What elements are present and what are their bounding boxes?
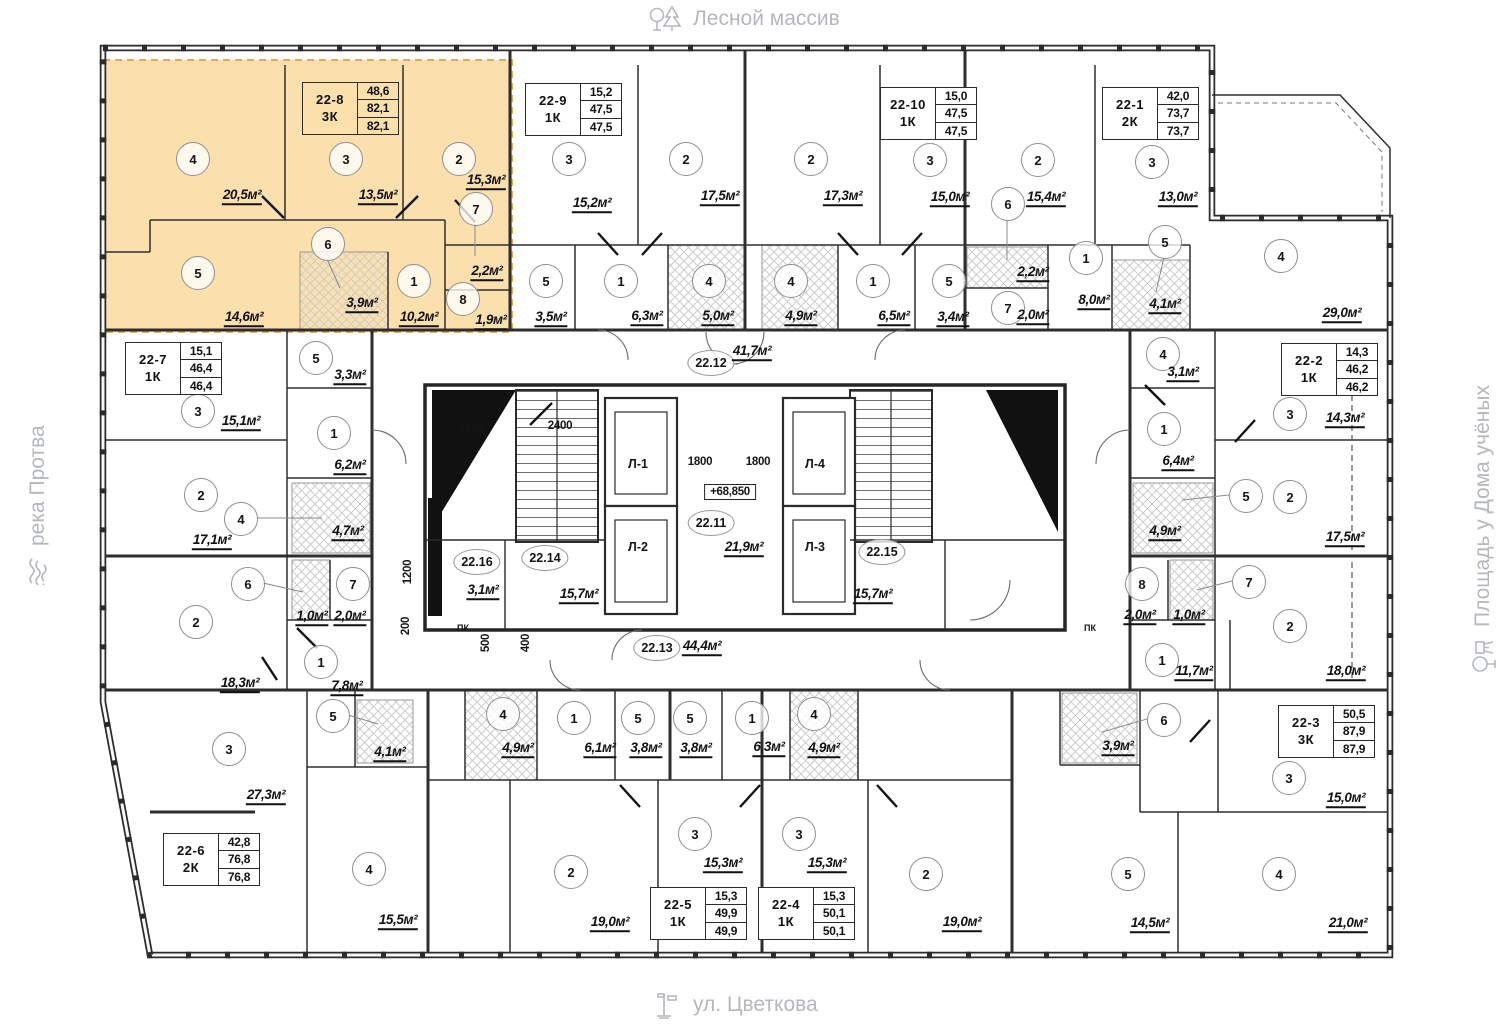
unit-number: 22-1 xyxy=(1116,97,1144,114)
room-area-label: 15,3м² xyxy=(807,855,847,873)
core-label: Л-4 xyxy=(805,457,825,471)
room-number-circle: 5 xyxy=(1229,479,1263,513)
room-number-circle: 1 xyxy=(1069,241,1103,275)
room-area-label: 18,0м² xyxy=(1326,663,1366,681)
room-area-label: 15,1м² xyxy=(221,413,261,431)
room-area-label: 2,0м² xyxy=(333,608,366,626)
room-area-label: 3,3м² xyxy=(333,367,366,385)
unit-id: 22-4 1К xyxy=(759,888,813,939)
room-area-label: 17,1м² xyxy=(192,532,232,550)
room-area-label: 2,0м² xyxy=(1123,607,1156,625)
room-number-circle: 7 xyxy=(459,192,493,226)
unit-number: 22-9 xyxy=(539,93,567,110)
plan-labels-layer: 420,5м²313,5м²215,3м²72,2м²514,6м²63,9м²… xyxy=(0,0,1500,1026)
room-area-label: 10,2м² xyxy=(399,309,439,327)
room-number-circle: 3 xyxy=(212,732,246,766)
unit-info-box[interactable]: 22-1 2К 42,0 73,7 73,7 xyxy=(1102,87,1199,140)
core-label: 3,1м² xyxy=(466,582,499,600)
unit-areas: 15,0 47,5 47,5 xyxy=(935,88,976,139)
unit-area-total: 49,9 xyxy=(706,904,746,921)
room-area-label: 15,4м² xyxy=(1026,189,1066,207)
room-area-label: 17,3м² xyxy=(823,188,863,206)
unit-area-full: 82,1 xyxy=(358,117,398,134)
dimension-label: +68,850 xyxy=(704,484,756,500)
room-number-circle: 1 xyxy=(397,264,431,298)
room-area-label: 3,9м² xyxy=(1101,738,1134,756)
room-area-label: 1,0м² xyxy=(1172,607,1205,625)
unit-id: 22-2 1К xyxy=(1282,344,1336,395)
room-number-circle: 1 xyxy=(856,264,890,298)
trees-icon xyxy=(648,5,682,33)
unit-areas: 14,3 46,2 46,2 xyxy=(1336,344,1377,395)
room-number-circle: 3 xyxy=(181,394,215,428)
unit-number: 22-5 xyxy=(664,897,692,914)
room-number-circle: 3 xyxy=(678,817,712,851)
room-number-circle: 1 xyxy=(735,701,769,735)
unit-id: 22-7 1К xyxy=(126,343,180,394)
unit-area-living: 15,3 xyxy=(814,888,854,904)
room-number-circle: 3 xyxy=(1135,145,1169,179)
core-label: Л-3 xyxy=(805,540,825,554)
unit-info-box[interactable]: 22-9 1К 15,2 47,5 47,5 xyxy=(525,83,622,136)
unit-areas: 48,6 82,1 82,1 xyxy=(357,83,398,134)
dimension-label: 1200 xyxy=(402,560,414,584)
room-number-circle: 5 xyxy=(1148,225,1182,259)
unit-number: 22-3 xyxy=(1292,715,1320,732)
room-number-circle: 2 xyxy=(669,142,703,176)
room-number-circle: 2 xyxy=(554,855,588,889)
unit-number: 22-8 xyxy=(316,92,344,109)
room-area-label: 6,4м² xyxy=(1161,453,1194,471)
unit-areas: 50,5 87,9 87,9 xyxy=(1333,706,1374,757)
unit-number: 22-4 xyxy=(772,897,800,914)
unit-number: 22-10 xyxy=(890,97,926,114)
park-square-icon xyxy=(1469,638,1497,674)
room-number-circle: 5 xyxy=(316,699,350,733)
dimension-label: 2450 xyxy=(459,423,483,435)
room-area-label: 1,9м² xyxy=(474,312,507,330)
unit-info-box[interactable]: 22-3 3К 50,5 87,9 87,9 xyxy=(1278,705,1375,758)
room-number-circle: 2 xyxy=(794,142,828,176)
room-number-circle: 5 xyxy=(529,264,563,298)
landmark-east: Площадь у Дома учёных xyxy=(1469,344,1497,674)
room-area-label: 8,0м² xyxy=(1077,292,1110,310)
unit-room-count: 3К xyxy=(1298,732,1314,749)
room-number-circle: 5 xyxy=(299,341,333,375)
room-number-circle: 2 xyxy=(184,478,218,512)
unit-areas: 15,2 47,5 47,5 xyxy=(580,84,621,135)
landmark-east-label: Площадь у Дома учёных xyxy=(1471,385,1495,627)
room-area-label: 11,7м² xyxy=(1174,663,1213,681)
room-number-circle: 3 xyxy=(1272,761,1306,795)
dimension-label: 400 xyxy=(520,634,532,652)
room-area-label: 6,2м² xyxy=(333,457,366,475)
room-number-circle: 7 xyxy=(1232,565,1266,599)
landmark-south-label: ул. Цветкова xyxy=(693,993,818,1017)
room-number-circle: 5 xyxy=(621,701,655,735)
unit-area-total: 87,9 xyxy=(1334,722,1374,739)
room-number-circle: 4 xyxy=(1262,857,1296,891)
dimension-label: 2400 xyxy=(548,420,572,432)
room-area-label: 4,9м² xyxy=(1148,523,1181,541)
room-number-circle: 4 xyxy=(692,264,726,298)
core-label: 15,7м² xyxy=(559,586,599,604)
core-label: 44,4м² xyxy=(682,638,722,656)
unit-area-living: 50,5 xyxy=(1334,706,1374,722)
unit-info-box[interactable]: 22-6 2К 42,8 76,8 76,8 xyxy=(163,833,260,886)
room-area-label: 27,3м² xyxy=(246,787,286,805)
room-area-label: 3,8м² xyxy=(679,740,712,758)
room-number-circle: 1 xyxy=(304,645,338,679)
unit-area-living: 15,1 xyxy=(181,343,221,359)
unit-area-full: 47,5 xyxy=(936,122,976,139)
room-number-circle: 2 xyxy=(179,605,213,639)
room-area-label: 4,9м² xyxy=(807,740,840,758)
room-area-label: 13,5м² xyxy=(358,187,398,205)
unit-area-living: 15,2 xyxy=(581,84,621,100)
unit-area-full: 87,9 xyxy=(1334,740,1374,757)
unit-room-count: 1К xyxy=(900,114,916,131)
room-number-circle: 5 xyxy=(932,264,966,298)
unit-room-count: 3К xyxy=(322,109,338,126)
unit-area-total: 76,8 xyxy=(219,850,259,867)
landmark-north: Лесной массив xyxy=(648,5,840,33)
room-area-label: 20,5м² xyxy=(222,187,262,205)
room-number-circle: 6 xyxy=(1147,703,1181,737)
room-area-label: 7,8м² xyxy=(330,678,363,696)
room-number-circle: 1 xyxy=(557,701,591,735)
core-space-number: 22.16 xyxy=(453,549,500,575)
unit-info-box[interactable]: 22-2 1К 14,3 46,2 46,2 xyxy=(1281,343,1378,396)
room-number-circle: 4 xyxy=(486,697,520,731)
room-number-circle: 8 xyxy=(1125,567,1159,601)
room-area-label: 14,6м² xyxy=(224,309,264,327)
room-area-label: 17,5м² xyxy=(700,188,740,206)
room-number-circle: 1 xyxy=(1147,412,1181,446)
dimension-label: 500 xyxy=(480,634,492,652)
room-area-label: 29,0м² xyxy=(1322,305,1362,323)
room-number-circle: 5 xyxy=(1111,857,1145,891)
room-area-label: 15,0м² xyxy=(930,189,970,207)
room-area-label: 17,5м² xyxy=(1325,529,1365,547)
unit-area-full: 46,2 xyxy=(1337,378,1377,395)
unit-id: 22-10 1К xyxy=(881,88,935,139)
unit-info-box[interactable]: 22-4 1К 15,3 50,1 50,1 xyxy=(758,887,855,940)
landmark-north-label: Лесной массив xyxy=(693,7,840,31)
unit-number: 22-6 xyxy=(177,843,205,860)
room-area-label: 15,3м² xyxy=(466,172,506,190)
unit-areas: 15,1 46,4 46,4 xyxy=(180,343,221,394)
room-area-label: 4,9м² xyxy=(784,308,817,326)
room-area-label: 1,0м² xyxy=(295,608,328,626)
core-label: 41,7м² xyxy=(732,343,772,361)
room-number-circle: 5 xyxy=(181,256,215,290)
room-area-label: 15,3м² xyxy=(703,855,743,873)
room-area-label: 13,0м² xyxy=(1158,189,1198,207)
room-number-circle: 6 xyxy=(991,187,1025,221)
unit-areas: 42,0 73,7 73,7 xyxy=(1157,88,1198,139)
unit-number: 22-2 xyxy=(1295,353,1323,370)
room-area-label: 15,2м² xyxy=(572,195,612,213)
core-space-number: 22.14 xyxy=(521,545,568,571)
street-lamp-icon xyxy=(652,990,682,1020)
unit-area-total: 46,2 xyxy=(1337,360,1377,377)
core-space-number: 22.11 xyxy=(688,510,735,536)
unit-room-count: 1К xyxy=(145,369,161,386)
room-number-circle: 6 xyxy=(311,227,345,261)
unit-area-living: 14,3 xyxy=(1337,344,1377,360)
room-area-label: 14,5м² xyxy=(1130,915,1170,933)
core-space-number: 22.13 xyxy=(633,635,680,661)
unit-area-total: 47,5 xyxy=(936,104,976,121)
room-number-circle: 3 xyxy=(782,817,816,851)
core-label: ПК xyxy=(1084,623,1096,633)
room-area-label: 6,1м² xyxy=(583,740,616,758)
room-area-label: 19,0м² xyxy=(590,914,630,932)
room-area-label: 4,1м² xyxy=(373,744,406,762)
unit-area-full: 73,7 xyxy=(1158,122,1198,139)
unit-info-box[interactable]: 22-7 1К 15,1 46,4 46,4 xyxy=(125,342,222,395)
room-area-label: 3,4м² xyxy=(936,309,969,327)
room-number-circle: 2 xyxy=(1021,143,1055,177)
room-area-label: 19,0м² xyxy=(942,914,982,932)
landmark-west: река Протва xyxy=(26,367,50,587)
room-area-label: 3,1м² xyxy=(1166,364,1199,382)
room-number-circle: 4 xyxy=(176,142,210,176)
room-number-circle: 3 xyxy=(913,143,947,177)
room-area-label: 5,0м² xyxy=(701,308,734,326)
room-number-circle: 1 xyxy=(604,264,638,298)
unit-info-box[interactable]: 22-5 1К 15,3 49,9 49,9 xyxy=(650,887,747,940)
unit-number: 22-7 xyxy=(139,352,167,369)
room-area-label: 15,0м² xyxy=(1326,790,1366,808)
unit-room-count: 2К xyxy=(1122,114,1138,131)
room-number-circle: 2 xyxy=(1273,609,1307,643)
unit-areas: 42,8 76,8 76,8 xyxy=(218,834,259,885)
unit-room-count: 1К xyxy=(1301,370,1317,387)
room-area-label: 18,3м² xyxy=(220,675,260,693)
room-number-circle: 4 xyxy=(774,264,808,298)
room-number-circle: 5 xyxy=(673,701,707,735)
room-number-circle: 2 xyxy=(442,142,476,176)
unit-area-full: 49,9 xyxy=(706,922,746,939)
core-label: Л-1 xyxy=(628,457,648,471)
room-number-circle: 8 xyxy=(446,282,480,316)
room-area-label: 3,9м² xyxy=(345,295,378,313)
room-area-label: 21,0м² xyxy=(1328,915,1368,933)
unit-area-full: 46,4 xyxy=(181,377,221,394)
room-area-label: 2,0м² xyxy=(1016,307,1049,325)
unit-info-box[interactable]: 22-8 3К 48,6 82,1 82,1 xyxy=(302,82,399,135)
core-label: ПК xyxy=(457,623,469,633)
room-area-label: 2,2м² xyxy=(1016,264,1049,282)
core-label: 15,7м² xyxy=(853,586,893,604)
dimension-label: 200 xyxy=(400,617,412,635)
unit-id: 22-6 2К xyxy=(164,834,218,885)
room-number-circle: 2 xyxy=(909,857,943,891)
core-label: 21,9м² xyxy=(724,539,764,557)
room-area-label: 14,3м² xyxy=(1325,410,1365,428)
room-area-label: 15,5м² xyxy=(378,912,418,930)
room-area-label: 4,1м² xyxy=(1148,296,1181,314)
unit-id: 22-3 3К xyxy=(1279,706,1333,757)
unit-id: 22-1 2К xyxy=(1103,88,1157,139)
room-area-label: 6,5м² xyxy=(877,308,910,326)
room-number-circle: 3 xyxy=(1273,397,1307,431)
unit-area-total: 47,5 xyxy=(581,100,621,117)
unit-area-total: 73,7 xyxy=(1158,104,1198,121)
unit-area-living: 15,0 xyxy=(936,88,976,104)
unit-areas: 15,3 50,1 50,1 xyxy=(813,888,854,939)
room-number-circle: 4 xyxy=(224,502,258,536)
room-area-label: 3,5м² xyxy=(534,309,567,327)
unit-areas: 15,3 49,9 49,9 xyxy=(705,888,746,939)
unit-id: 22-9 1К xyxy=(526,84,580,135)
room-area-label: 4,9м² xyxy=(501,740,534,758)
room-area-label: 4,7м² xyxy=(331,523,364,541)
unit-id: 22-8 3К xyxy=(303,83,357,134)
unit-area-full: 50,1 xyxy=(814,922,854,939)
unit-area-full: 76,8 xyxy=(219,868,259,885)
room-area-label: 2,2м² xyxy=(470,263,503,281)
unit-area-total: 50,1 xyxy=(814,904,854,921)
room-area-label: 6,3м² xyxy=(752,739,785,757)
room-number-circle: 7 xyxy=(336,567,370,601)
unit-area-living: 15,3 xyxy=(706,888,746,904)
dimension-label: 1800 xyxy=(688,456,712,468)
room-number-circle: 3 xyxy=(552,142,586,176)
core-space-number: 22.15 xyxy=(858,539,905,565)
floorplan-page: 420,5м²313,5м²215,3м²72,2м²514,6м²63,9м²… xyxy=(0,0,1500,1026)
landmark-west-label: река Протва xyxy=(26,425,50,546)
unit-area-full: 47,5 xyxy=(581,118,621,135)
unit-room-count: 1К xyxy=(778,914,794,931)
landmark-south: ул. Цветкова xyxy=(652,990,818,1020)
room-number-circle: 4 xyxy=(1264,239,1298,273)
dimension-label: 1800 xyxy=(746,456,770,468)
room-number-circle: 1 xyxy=(317,416,351,450)
unit-room-count: 1К xyxy=(670,914,686,931)
room-number-circle: 4 xyxy=(797,697,831,731)
unit-area-total: 46,4 xyxy=(181,359,221,376)
unit-room-count: 2К xyxy=(183,860,199,877)
unit-area-total: 82,1 xyxy=(358,99,398,116)
room-number-circle: 4 xyxy=(352,852,386,886)
core-space-number: 22.12 xyxy=(687,350,734,376)
core-label: Л-2 xyxy=(628,540,648,554)
unit-info-box[interactable]: 22-10 1К 15,0 47,5 47,5 xyxy=(880,87,977,140)
unit-area-living: 42,8 xyxy=(219,834,259,850)
room-number-circle: 3 xyxy=(329,142,363,176)
unit-id: 22-5 1К xyxy=(651,888,705,939)
room-area-label: 6,3м² xyxy=(630,308,663,326)
unit-area-living: 48,6 xyxy=(358,83,398,99)
river-waves-icon xyxy=(26,557,50,587)
unit-room-count: 1К xyxy=(545,110,561,127)
room-number-circle: 6 xyxy=(231,567,265,601)
unit-area-living: 42,0 xyxy=(1158,88,1198,104)
room-area-label: 3,8м² xyxy=(629,740,662,758)
room-number-circle: 2 xyxy=(1273,480,1307,514)
